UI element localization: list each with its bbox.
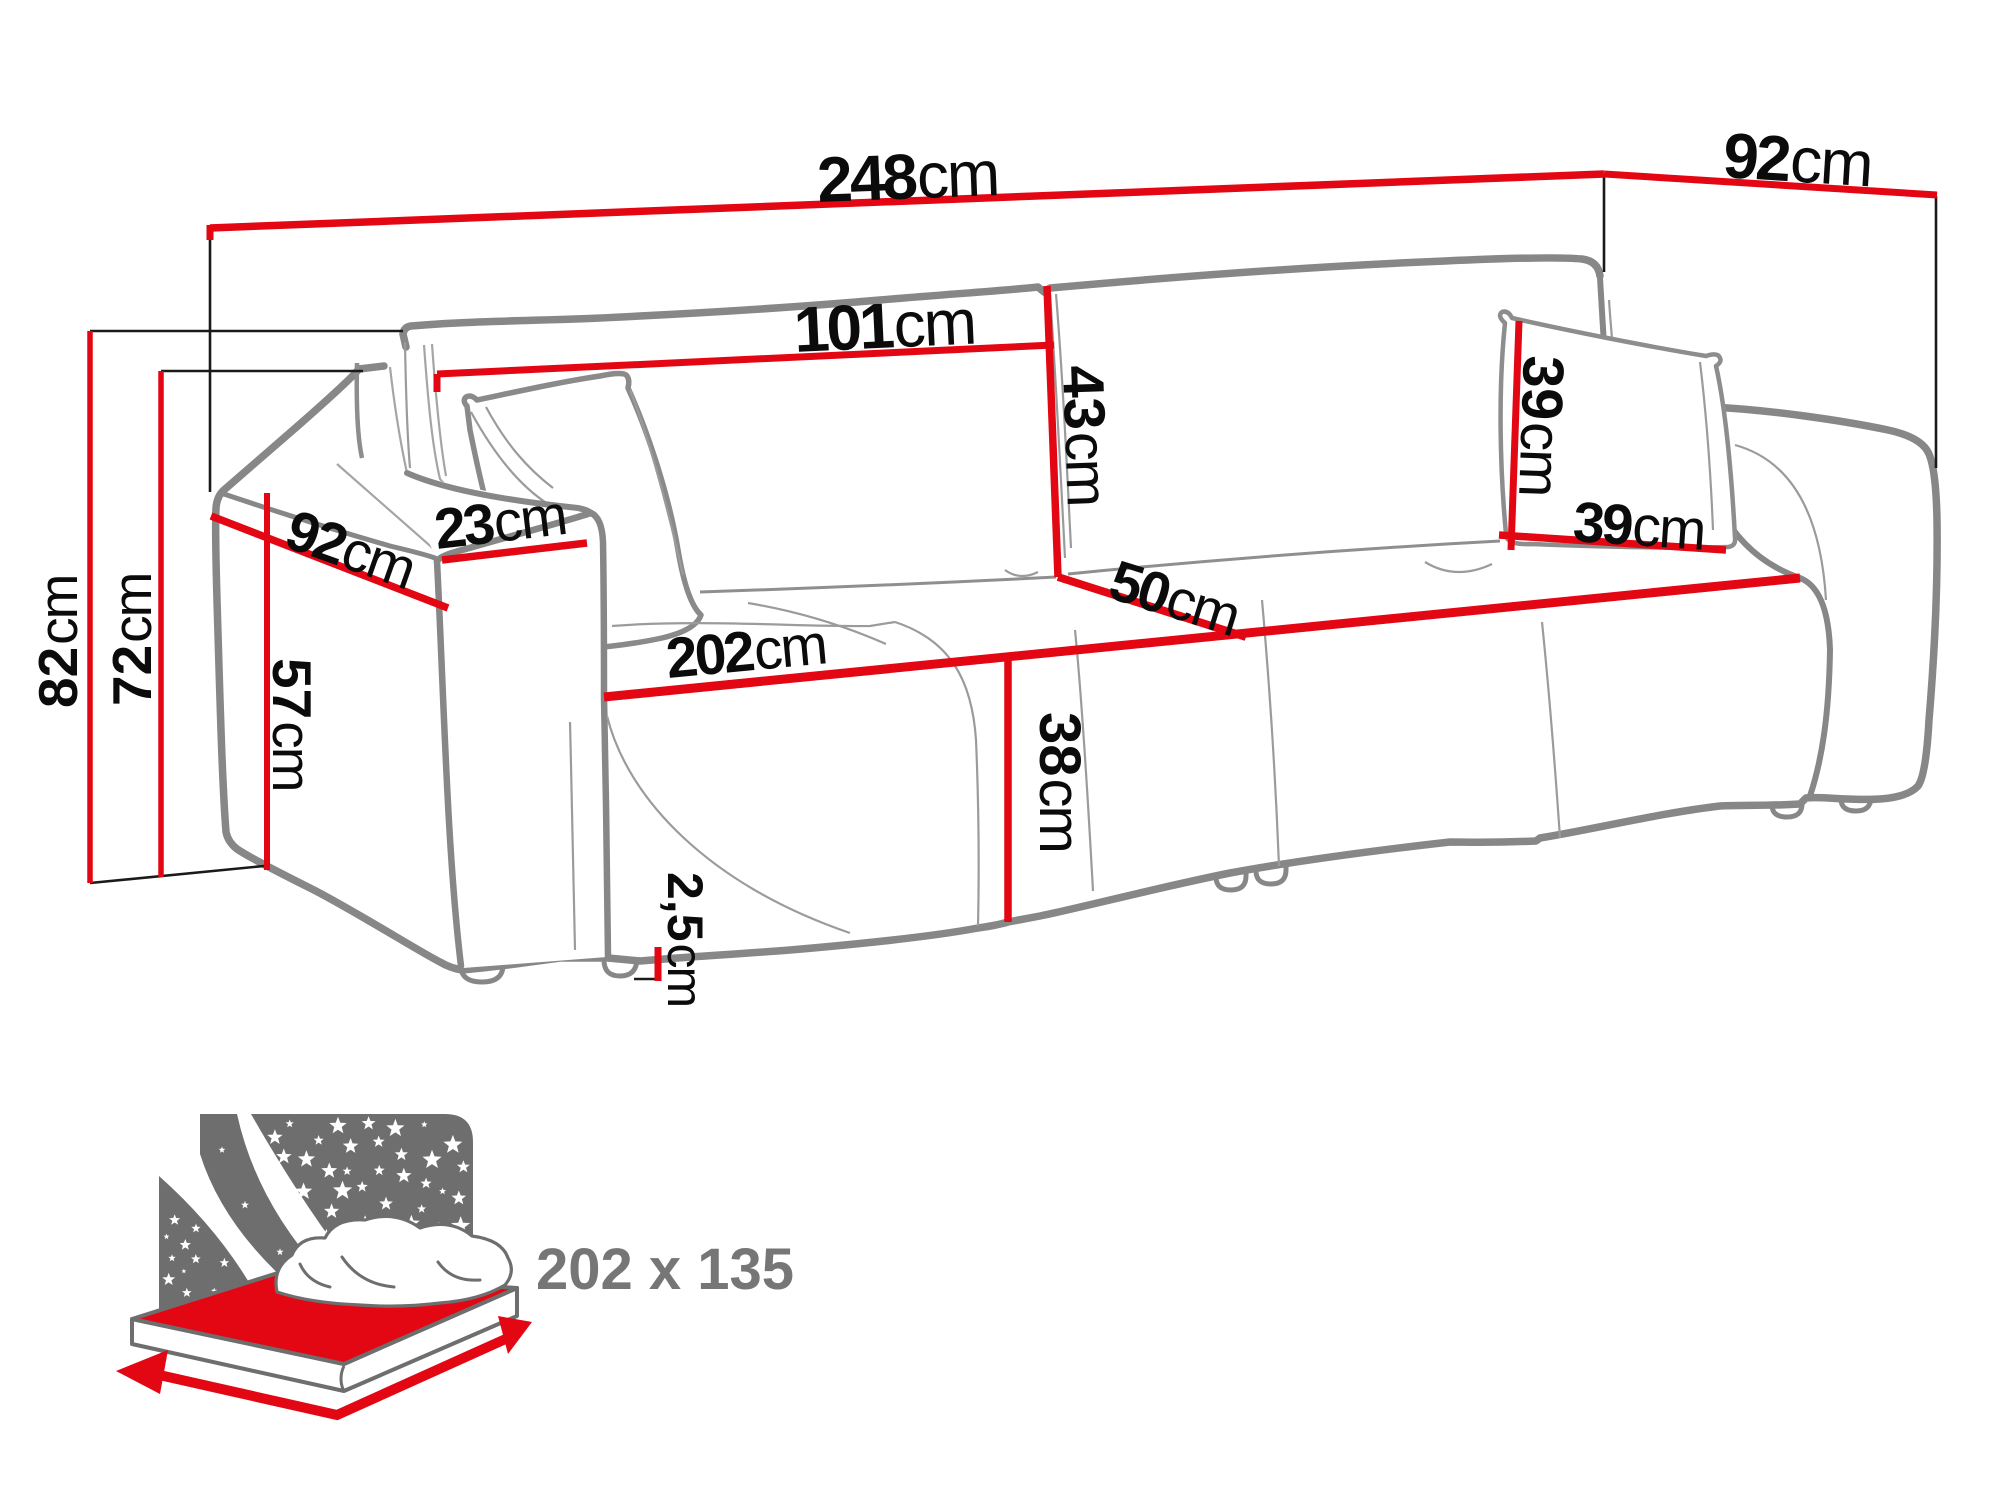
svg-text:72cm: 72cm xyxy=(101,573,163,706)
svg-text:82cm: 82cm xyxy=(27,575,89,708)
svg-text:101cm: 101cm xyxy=(792,286,976,366)
svg-text:92cm: 92cm xyxy=(1721,119,1874,200)
svg-text:202 x 135: 202 x 135 xyxy=(536,1237,794,1302)
svg-text:39cm: 39cm xyxy=(1571,490,1706,563)
svg-text:248cm: 248cm xyxy=(816,137,1000,216)
svg-text:57cm: 57cm xyxy=(261,658,323,791)
svg-text:38cm: 38cm xyxy=(1027,712,1092,852)
svg-text:39cm: 39cm xyxy=(1506,355,1576,497)
svg-text:2,5cm: 2,5cm xyxy=(657,872,713,1006)
svg-text:43cm: 43cm xyxy=(1050,364,1120,506)
